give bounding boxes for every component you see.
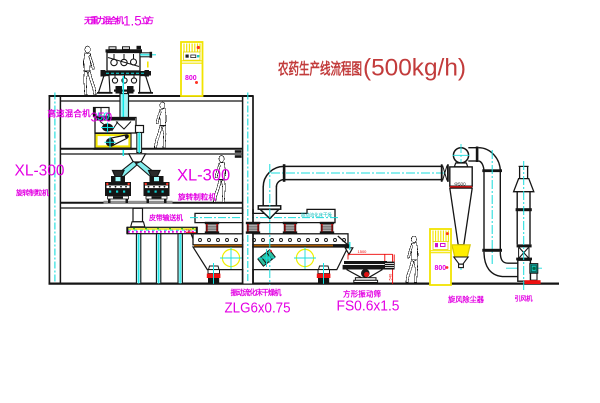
svg-text:旋转制粒机: 旋转制粒机 [15, 188, 49, 197]
svg-text:1.5: 1.5 [123, 14, 142, 29]
svg-text:立方: 立方 [141, 16, 154, 26]
svg-text:无重力混合机: 无重力混合机 [83, 16, 124, 26]
svg-text:Φ500: Φ500 [454, 182, 466, 187]
svg-text:350: 350 [91, 110, 113, 125]
svg-text:XL-300: XL-300 [177, 167, 230, 185]
svg-text:农药生产线流程图: 农药生产线流程图 [277, 59, 362, 78]
svg-text:方形振动筛: 方形振动筛 [343, 289, 382, 298]
svg-text:800: 800 [435, 265, 447, 272]
svg-text:引风机: 引风机 [515, 294, 534, 303]
svg-text:1500: 1500 [358, 249, 368, 254]
svg-text:FS0.6x1.5: FS0.6x1.5 [337, 299, 400, 315]
svg-text:XL-300: XL-300 [15, 163, 65, 180]
svg-text:800: 800 [185, 75, 197, 82]
svg-text:(500kg/h): (500kg/h) [363, 55, 466, 82]
svg-text:振动流化床干燥机: 振动流化床干燥机 [231, 288, 283, 297]
svg-text:旋风除尘器: 旋风除尘器 [447, 295, 485, 304]
svg-text:540: 540 [387, 273, 392, 280]
svg-text:旋转制粒机: 旋转制粒机 [177, 192, 216, 202]
svg-text:高速混合机: 高速混合机 [48, 109, 92, 119]
svg-text:皮带输送机: 皮带输送机 [148, 213, 183, 222]
svg-text:ZLG6x0.75: ZLG6x0.75 [225, 301, 291, 317]
svg-text:振动流化床干燥: 振动流化床干燥 [301, 212, 332, 219]
svg-text:750: 750 [185, 228, 192, 233]
